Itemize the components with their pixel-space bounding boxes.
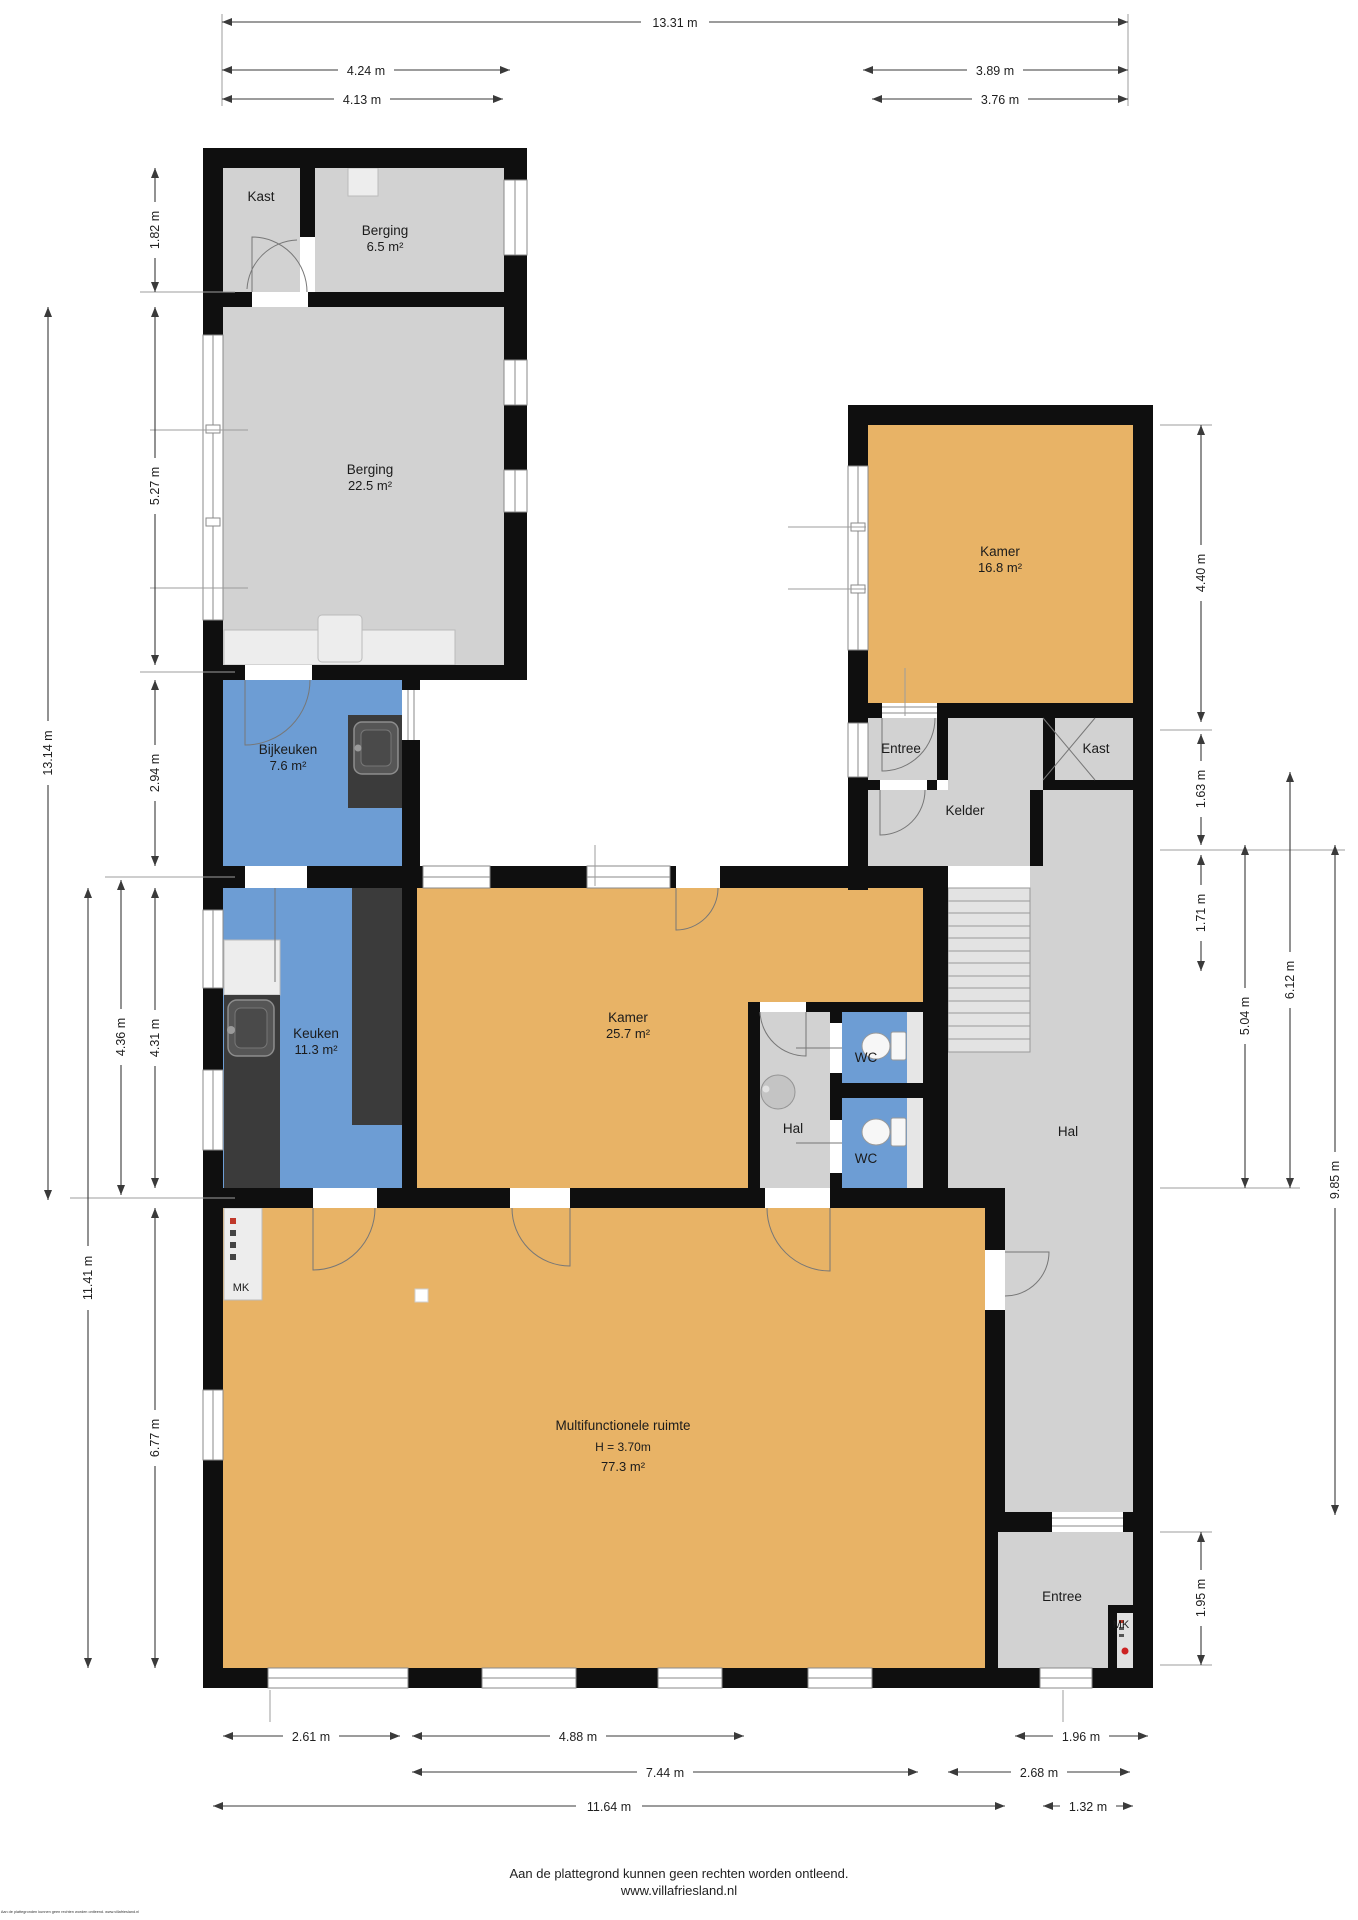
door-opening xyxy=(300,237,315,292)
dim-left-11-41: 11.41 m xyxy=(81,888,95,1668)
dim-label: 5.27 m xyxy=(148,467,162,505)
dim-label: 4.40 m xyxy=(1194,554,1208,592)
dim-top-left-outer: 4.24 m xyxy=(222,64,510,78)
room-label-mk-rechts: MK xyxy=(1113,1619,1130,1631)
room-multifunctioneel-fill xyxy=(223,1208,985,1668)
dim-label: 1.32 m xyxy=(1069,1800,1107,1814)
keuken-counter-right xyxy=(352,888,402,1125)
dim-top-right-outer: 3.89 m xyxy=(863,64,1128,78)
dim-left-5-27: 5.27 m xyxy=(148,307,162,665)
dim-left-1-82: 1.82 m xyxy=(148,168,162,292)
hal-rechts-fill-a xyxy=(1043,790,1133,866)
dim-label: 1.63 m xyxy=(1194,770,1208,808)
window-icon xyxy=(587,866,670,888)
dim-right-1-95: 1.95 m xyxy=(1194,1532,1208,1665)
hal-rechts-fill-d xyxy=(1005,1208,1133,1512)
door-opening xyxy=(252,292,308,307)
window-icon xyxy=(203,910,223,988)
dim-label: 3.89 m xyxy=(976,64,1014,78)
hal-rechts-fill-b xyxy=(1030,866,1133,1052)
dim-label: 4.88 m xyxy=(559,1730,597,1744)
window-icon xyxy=(504,470,527,512)
dim-left-2-94: 2.94 m xyxy=(148,680,162,866)
footer-disclaimer: Aan de plattegrond kunnen geen rechten w… xyxy=(510,1866,849,1881)
boiler2-icon xyxy=(318,615,362,662)
dim-left-6-77: 6.77 m xyxy=(148,1208,162,1668)
dim-top-left-inner: 4.13 m xyxy=(222,93,503,107)
window-icon xyxy=(504,360,527,405)
window-icon xyxy=(268,1668,408,1688)
room-label-berging-large: Berging22.5 m² xyxy=(347,462,394,493)
duct-strip xyxy=(907,1012,923,1195)
dim-bottom-2-68: 2.68 m xyxy=(948,1766,1130,1780)
bijkeuken-sink-basin xyxy=(361,730,391,766)
dim-label: 13.31 m xyxy=(652,16,697,30)
dim-bottom-2-61: 2.61 m xyxy=(223,1730,400,1744)
room-berging-small-fill xyxy=(315,168,504,292)
door-opening xyxy=(245,866,307,888)
room-label-hal-rechts: Hal xyxy=(1058,1124,1078,1139)
entry-door-icon xyxy=(882,703,937,718)
dim-label: 6.12 m xyxy=(1283,961,1297,999)
room-label-hal-midden: Hal xyxy=(783,1121,803,1136)
door-opening xyxy=(760,1002,806,1012)
dim-bottom-11-64: 11.64 m xyxy=(213,1800,1005,1814)
dim-right-6-12: 6.12 m xyxy=(1283,772,1297,1188)
side-door-icon xyxy=(402,690,420,740)
dim-bottom-1-32: 1.32 m xyxy=(1043,1800,1133,1814)
dim-right-1-71: 1.71 m xyxy=(1194,855,1208,971)
floor-hatch-icon xyxy=(415,1289,428,1302)
dim-label: 3.76 m xyxy=(981,93,1019,107)
door-opening xyxy=(880,780,927,790)
window-icon xyxy=(203,1390,223,1460)
dim-label: 2.68 m xyxy=(1020,1766,1058,1780)
room-label-mk-links: MK xyxy=(233,1282,250,1294)
footer-fine-print: Aan de plattegronden kunnen geen rechten… xyxy=(1,1910,139,1914)
room-kelder-fill xyxy=(868,790,1030,866)
room-label-berging-small: Berging6.5 m² xyxy=(362,223,409,254)
dim-right-4-40: 4.40 m xyxy=(1194,425,1208,722)
dim-top-total: 13.31 m xyxy=(222,16,1128,30)
window-icon xyxy=(848,466,868,650)
keuken-counter-light xyxy=(224,940,280,995)
dim-label: 4.24 m xyxy=(347,64,385,78)
meterkast-right-icon xyxy=(1108,1605,1133,1668)
window-icon xyxy=(658,1668,722,1688)
dim-right-1-63: 1.63 m xyxy=(1194,734,1208,845)
dim-top-right-inner: 3.76 m xyxy=(872,93,1128,107)
dim-label: 1.71 m xyxy=(1194,894,1208,932)
room-label-kamer-groot: Kamer25.7 m² xyxy=(606,1010,651,1041)
stairs-icon xyxy=(948,888,1030,1052)
door-opening xyxy=(510,1188,570,1208)
door-opening xyxy=(313,1188,377,1208)
room-label-entree-onder: Entree xyxy=(1042,1589,1082,1604)
dim-left-4-31: 4.31 m xyxy=(148,888,162,1188)
floorplan-drawing: 13.31 m 4.24 m 3.89 m 4.13 m 3.76 m 1.82… xyxy=(0,0,1358,1920)
toilet-icon-wc2 xyxy=(862,1118,906,1146)
boiler-icon xyxy=(348,168,378,196)
window-icon xyxy=(1040,1668,1092,1688)
dim-label: 1.96 m xyxy=(1062,1730,1100,1744)
room-label-entree-boven: Entree xyxy=(881,741,921,756)
dim-label: 4.13 m xyxy=(343,93,381,107)
dim-left-13-14: 13.14 m xyxy=(41,307,55,1200)
room-label-wc2: WC xyxy=(855,1151,878,1166)
dim-right-9-85: 9.85 m xyxy=(1328,845,1342,1515)
dim-bottom-1-96: 1.96 m xyxy=(1015,1730,1148,1744)
dim-label: 5.04 m xyxy=(1238,997,1252,1035)
room-label-keuken: Keuken11.3 m² xyxy=(293,1026,339,1057)
floorplan-page: 13.31 m 4.24 m 3.89 m 4.13 m 3.76 m 1.82… xyxy=(0,0,1358,1920)
footer-website: www.villafriesland.nl xyxy=(620,1883,737,1898)
door-opening xyxy=(830,1120,842,1173)
dim-label: 2.94 m xyxy=(148,754,162,792)
dim-left-4-36: 4.36 m xyxy=(114,880,128,1195)
dim-right-5-04: 5.04 m xyxy=(1238,845,1252,1188)
room-kast-top-fill xyxy=(223,168,300,292)
keuken-sink-basin xyxy=(235,1008,267,1048)
hall-top-strip-fill xyxy=(948,718,1043,790)
room-label-kast-top: Kast xyxy=(247,189,274,204)
keuken-faucet-icon xyxy=(227,1026,235,1034)
window-icon xyxy=(504,180,527,255)
door-opening xyxy=(765,1188,830,1208)
dim-label: 11.64 m xyxy=(587,1800,631,1814)
dim-bottom-4-88: 4.88 m xyxy=(412,1730,744,1744)
dim-label: 7.44 m xyxy=(646,1766,684,1780)
room-label-kelder: Kelder xyxy=(945,803,985,818)
window-icon xyxy=(482,1668,576,1688)
dim-label: 13.14 m xyxy=(41,730,55,775)
footer: Aan de plattegrond kunnen geen rechten w… xyxy=(1,1866,849,1914)
door-opening xyxy=(985,1250,1005,1310)
window-icon xyxy=(423,866,490,888)
window-icon xyxy=(848,723,868,777)
window-icon xyxy=(203,335,223,620)
dim-label: 9.85 m xyxy=(1328,1161,1342,1199)
hal-rechts-fill-c xyxy=(948,1052,1133,1208)
dim-label: 2.61 m xyxy=(292,1730,330,1744)
entry-door-icon xyxy=(1052,1512,1123,1532)
dim-label: 11.41 m xyxy=(81,1256,95,1300)
dim-label: 6.77 m xyxy=(148,1419,162,1457)
dim-label: 1.95 m xyxy=(1194,1579,1208,1617)
dim-bottom-7-44: 7.44 m xyxy=(412,1766,918,1780)
door-opening xyxy=(676,866,720,888)
room-label-kast-rechts: Kast xyxy=(1082,741,1109,756)
bijkeuken-faucet-icon xyxy=(355,745,362,752)
dim-label: 4.36 m xyxy=(114,1018,128,1056)
meter-indicator-icon xyxy=(1122,1648,1129,1655)
room-label-kamer-klein: Kamer16.8 m² xyxy=(978,544,1023,575)
hal-sink-drain xyxy=(763,1086,770,1093)
window-icon xyxy=(808,1668,872,1688)
room-label-wc1: WC xyxy=(855,1050,878,1065)
dim-label: 1.82 m xyxy=(148,211,162,249)
door-opening xyxy=(245,665,312,680)
window-icon xyxy=(203,1070,223,1150)
dim-label: 4.31 m xyxy=(148,1019,162,1057)
